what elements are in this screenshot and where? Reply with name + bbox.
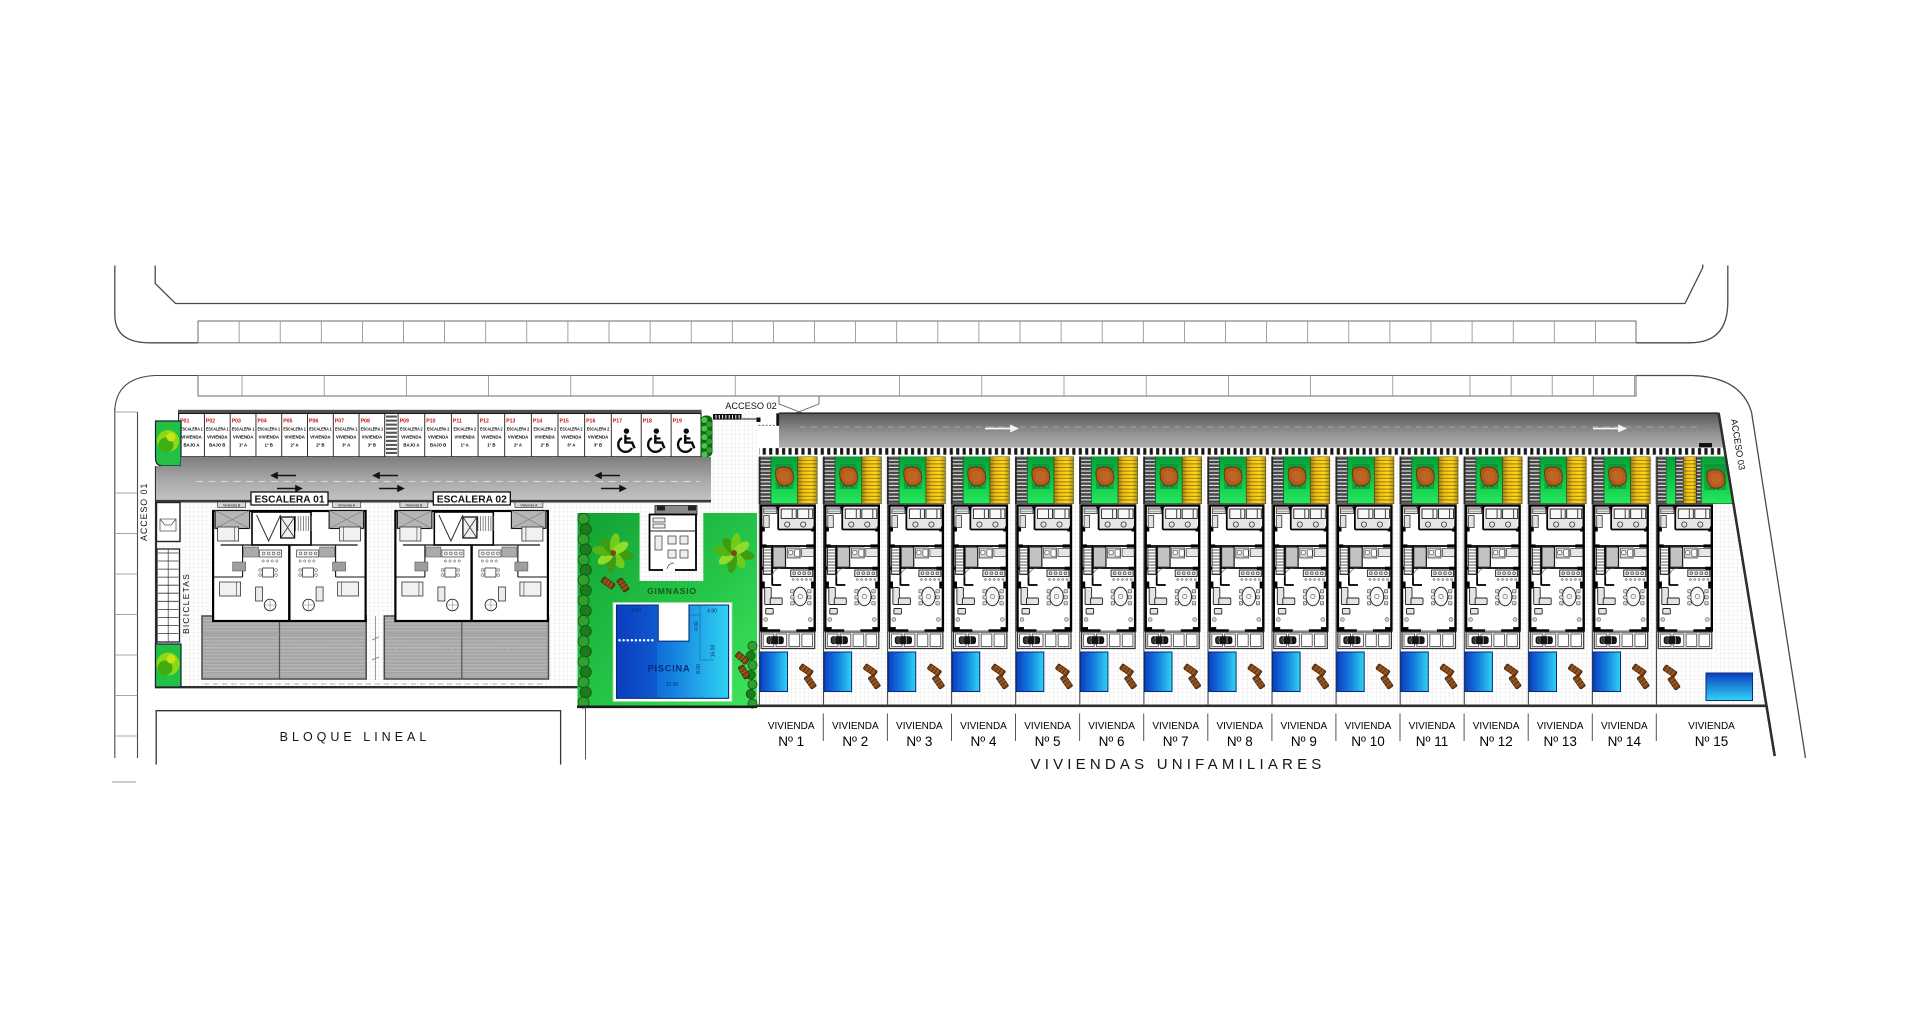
svg-text:2º B: 2º B [541,443,549,448]
svg-text:Nº 10: Nº 10 [1351,734,1384,749]
svg-text:4.00: 4.00 [631,608,641,614]
svg-text:VIVIENDA: VIVIENDA [1345,721,1392,732]
svg-text:P09: P09 [400,419,409,425]
svg-text:Nº 6: Nº 6 [1099,734,1125,749]
svg-text:Nº 11: Nº 11 [1416,734,1448,749]
svg-text:VIVIENDA: VIVIENDA [454,435,475,440]
svg-text:1º A: 1º A [239,443,247,448]
svg-text:Nº 4: Nº 4 [971,734,997,749]
svg-text:VIVIENDA: VIVIENDA [588,435,609,440]
svg-text:ESCALERA 2: ESCALERA 2 [453,427,476,432]
svg-text:Nº 9: Nº 9 [1291,734,1317,749]
svg-text:BICICLETAS: BICICLETAS [181,573,191,634]
svg-text:ESCALERA 02: ESCALERA 02 [437,494,507,506]
svg-text:2º A: 2º A [291,443,299,448]
svg-text:P02: P02 [206,419,215,425]
svg-text:3º B: 3º B [368,443,376,448]
svg-text:VIVIENDA: VIVIENDA [1409,721,1456,732]
svg-text:Nº 1: Nº 1 [778,734,804,749]
svg-text:ESCALERA 2: ESCALERA 2 [400,427,423,432]
svg-text:VIVIENDA: VIVIENDA [362,435,383,440]
svg-text:ESCALERA 1: ESCALERA 1 [232,427,255,432]
svg-text:VIVIENDA: VIVIENDA [401,435,422,440]
svg-text:P03: P03 [232,419,241,425]
svg-text:Nº 7: Nº 7 [1163,734,1189,749]
svg-text:ESCALERA 1: ESCALERA 1 [180,427,203,432]
svg-text:VIVIENDA: VIVIENDA [896,721,943,732]
svg-text:Nº 3: Nº 3 [906,734,932,749]
svg-text:VIVIENDA: VIVIENDA [1281,721,1328,732]
svg-text:BAJO A: BAJO A [403,443,419,448]
svg-text:VIVIENDA: VIVIENDA [1601,721,1648,732]
svg-text:Nº 8: Nº 8 [1227,734,1253,749]
svg-text:Nº 13: Nº 13 [1543,734,1576,749]
svg-text:VIVIENDA: VIVIENDA [181,435,202,440]
svg-text:ACCESO 02: ACCESO 02 [725,401,777,411]
svg-text:VIVIENDA: VIVIENDA [481,435,502,440]
svg-text:P13: P13 [506,419,515,425]
svg-text:P05: P05 [283,419,292,425]
svg-text:ESCALERA 2: ESCALERA 2 [427,427,450,432]
svg-text:VIVIENDA: VIVIENDA [310,435,331,440]
svg-text:P08: P08 [361,419,370,425]
svg-text:P16: P16 [586,419,595,425]
svg-text:VIVIENDA: VIVIENDA [534,435,555,440]
svg-text:VIVIENDA: VIVIENDA [1024,721,1071,732]
svg-text:GIMNASIO: GIMNASIO [647,586,697,596]
svg-text:VIVIENDA: VIVIENDA [1537,721,1584,732]
svg-text:ESCALERA 2: ESCALERA 2 [533,427,556,432]
svg-text:ESCALERA 1: ESCALERA 1 [309,427,332,432]
svg-text:3º A: 3º A [567,443,575,448]
svg-text:3º A: 3º A [342,443,350,448]
svg-text:P19: P19 [673,419,682,425]
svg-text:BLOQUE LINEAL: BLOQUE LINEAL [280,730,431,744]
svg-text:VIVIENDA: VIVIENDA [832,721,879,732]
svg-text:P11: P11 [453,419,462,425]
svg-text:ACCESO 01: ACCESO 01 [139,483,149,541]
svg-text:Nº 14: Nº 14 [1608,734,1642,749]
svg-text:16.00: 16.00 [711,645,717,658]
svg-text:VIVIENDA: VIVIENDA [207,435,228,440]
svg-text:ESCALERA 01: ESCALERA 01 [255,494,325,506]
svg-text:P14: P14 [533,419,542,425]
svg-text:ESCALERA 2: ESCALERA 2 [560,427,583,432]
svg-text:ESCALERA 1: ESCALERA 1 [258,427,281,432]
svg-text:P07: P07 [335,419,344,425]
svg-text:ESCALERA 1: ESCALERA 1 [206,427,229,432]
svg-text:ESCALERA 1: ESCALERA 1 [335,427,358,432]
svg-text:3º B: 3º B [594,443,602,448]
svg-text:VIVIENDA: VIVIENDA [1688,721,1735,732]
svg-text:ESCALERA 1: ESCALERA 1 [283,427,306,432]
svg-text:Nº 12: Nº 12 [1479,734,1512,749]
svg-text:VIVIENDA: VIVIENDA [561,435,582,440]
svg-text:ESCALERA 2: ESCALERA 2 [587,427,610,432]
svg-text:P15: P15 [560,419,569,425]
svg-text:ESCALERA 2: ESCALERA 2 [480,427,503,432]
svg-text:12.00: 12.00 [666,682,679,688]
svg-text:BAJO B: BAJO B [209,443,225,448]
svg-text:8.00: 8.00 [696,664,702,674]
svg-text:4.00: 4.00 [694,621,700,631]
svg-text:P04: P04 [257,419,266,425]
svg-text:2º A: 2º A [514,443,522,448]
svg-text:1º A: 1º A [461,443,469,448]
svg-text:1º B: 1º B [487,443,495,448]
svg-text:1º B: 1º B [265,443,273,448]
svg-text:VIVIENDA: VIVIENDA [284,435,305,440]
svg-text:2º B: 2º B [316,443,324,448]
svg-text:VIVIENDA: VIVIENDA [1152,721,1199,732]
svg-text:Nº 2: Nº 2 [842,734,868,749]
svg-text:BAJO B: BAJO B [430,443,446,448]
svg-text:VIVIENDA: VIVIENDA [1088,721,1135,732]
svg-text:BAJO A: BAJO A [183,443,199,448]
svg-text:VIVIENDAS UNIFAMILIARES: VIVIENDAS UNIFAMILIARES [1031,756,1326,773]
svg-text:VIVIENDA: VIVIENDA [428,435,449,440]
svg-text:VIVIENDA: VIVIENDA [259,435,280,440]
svg-text:VIVIENDA: VIVIENDA [960,721,1007,732]
svg-text:VIVIENDA: VIVIENDA [1473,721,1520,732]
svg-text:ESCALERA 2: ESCALERA 2 [507,427,530,432]
svg-text:VIVIENDA: VIVIENDA [1216,721,1263,732]
svg-text:VIVIENDA: VIVIENDA [768,721,815,732]
svg-text:4.90: 4.90 [707,609,717,615]
svg-text:P10: P10 [426,419,435,425]
svg-text:VIVIENDA: VIVIENDA [508,435,529,440]
svg-text:VIVIENDA: VIVIENDA [336,435,357,440]
svg-text:PISCINA: PISCINA [648,664,691,674]
svg-text:VIVIENDA: VIVIENDA [233,435,254,440]
svg-text:P12: P12 [480,419,489,425]
svg-text:P06: P06 [309,419,318,425]
svg-text:Nº 5: Nº 5 [1035,734,1061,749]
svg-text:P17: P17 [613,419,622,425]
svg-text:P18: P18 [643,419,652,425]
svg-text:ESCALERA 1: ESCALERA 1 [361,427,384,432]
svg-text:Nº 15: Nº 15 [1695,734,1728,749]
